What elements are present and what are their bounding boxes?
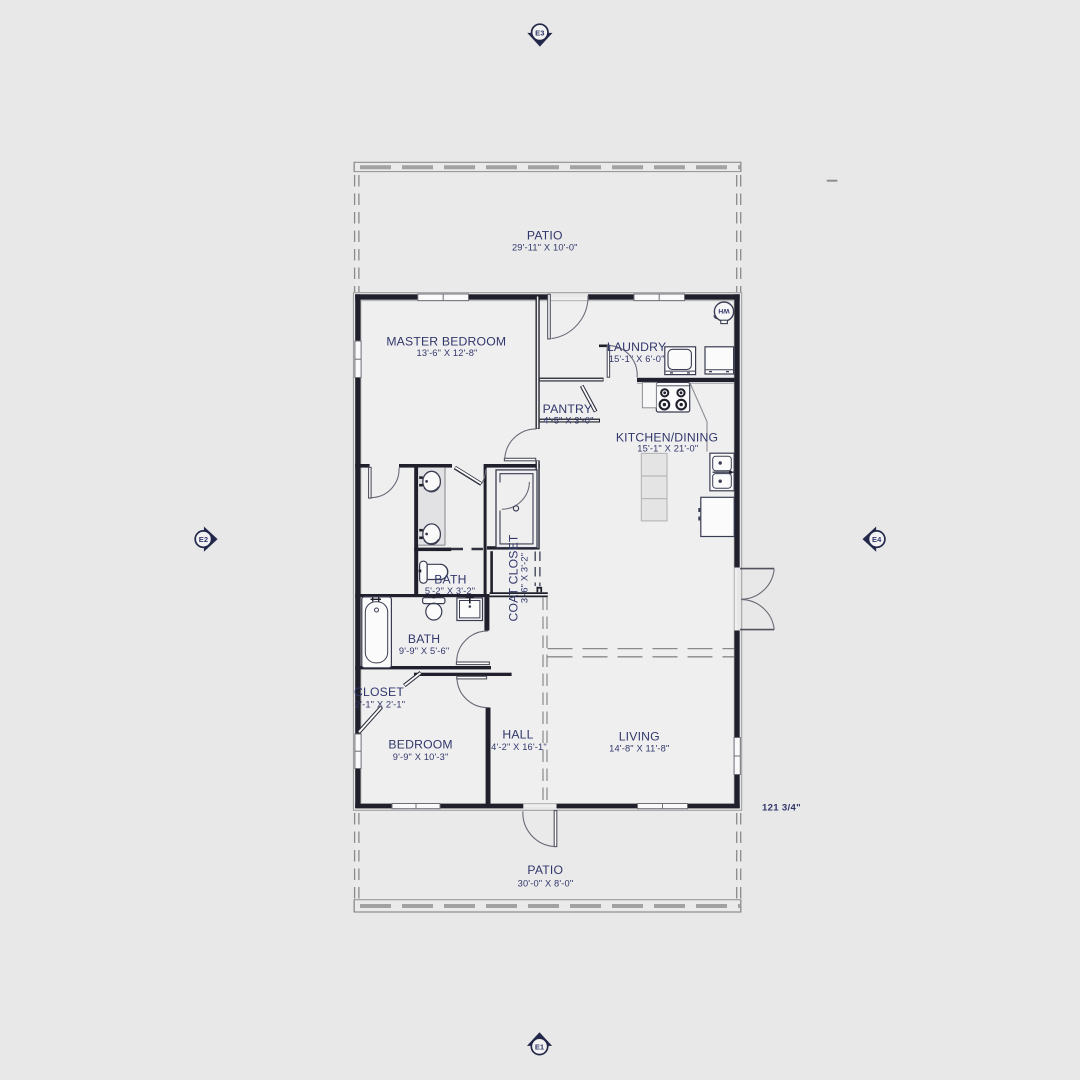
svg-text:BATH: BATH <box>408 632 440 646</box>
svg-text:4'-5" X 3'-0": 4'-5" X 3'-0" <box>543 415 593 425</box>
svg-text:29'-11" X 10'-0": 29'-11" X 10'-0" <box>512 243 578 253</box>
svg-text:9'-9" X 10'-3": 9'-9" X 10'-3" <box>393 752 449 762</box>
svg-text:3'-6" X 3'-2": 3'-6" X 3'-2" <box>520 553 530 603</box>
svg-text:MASTER BEDROOM: MASTER BEDROOM <box>386 334 506 348</box>
svg-text:PATIO: PATIO <box>527 863 563 877</box>
svg-text:5'-2" X 3'-2": 5'-2" X 3'-2" <box>425 586 475 596</box>
svg-text:E1: E1 <box>535 1042 545 1051</box>
svg-text:E3: E3 <box>535 28 544 37</box>
svg-text:E4: E4 <box>872 535 882 544</box>
svg-text:LIVING: LIVING <box>619 730 660 744</box>
svg-text:HALL: HALL <box>502 728 533 742</box>
svg-text:15'-1" X 21'-0": 15'-1" X 21'-0" <box>637 443 698 453</box>
svg-text:PATIO: PATIO <box>527 228 563 242</box>
svg-text:9'-9" X 5'-6": 9'-9" X 5'-6" <box>399 646 449 656</box>
svg-text:BEDROOM: BEDROOM <box>388 738 452 752</box>
svg-text:PANTRY: PANTRY <box>543 402 593 416</box>
svg-text:BATH: BATH <box>434 572 466 586</box>
svg-text:LAUNDRY: LAUNDRY <box>607 340 666 354</box>
svg-text:14'-8" X 11'-8": 14'-8" X 11'-8" <box>609 744 669 754</box>
svg-text:E2: E2 <box>199 535 208 544</box>
svg-text:30'-0" X 8'-0": 30'-0" X 8'-0" <box>518 878 574 888</box>
svg-text:WH: WH <box>718 307 729 314</box>
svg-text:2'-1" X 2'-1": 2'-1" X 2'-1" <box>355 700 405 710</box>
svg-text:13'-6" X 12'-8": 13'-6" X 12'-8" <box>417 348 478 358</box>
svg-text:CLOSET: CLOSET <box>354 685 404 699</box>
svg-text:4'-2" X 16'-1": 4'-2" X 16'-1" <box>491 742 547 752</box>
svg-text:121 3/4": 121 3/4" <box>762 802 801 813</box>
svg-text:COAT CLOSET: COAT CLOSET <box>507 534 521 621</box>
svg-text:15'-1" X 6'-0": 15'-1" X 6'-0" <box>609 354 665 364</box>
svg-text:KITCHEN/DINING: KITCHEN/DINING <box>616 430 718 444</box>
